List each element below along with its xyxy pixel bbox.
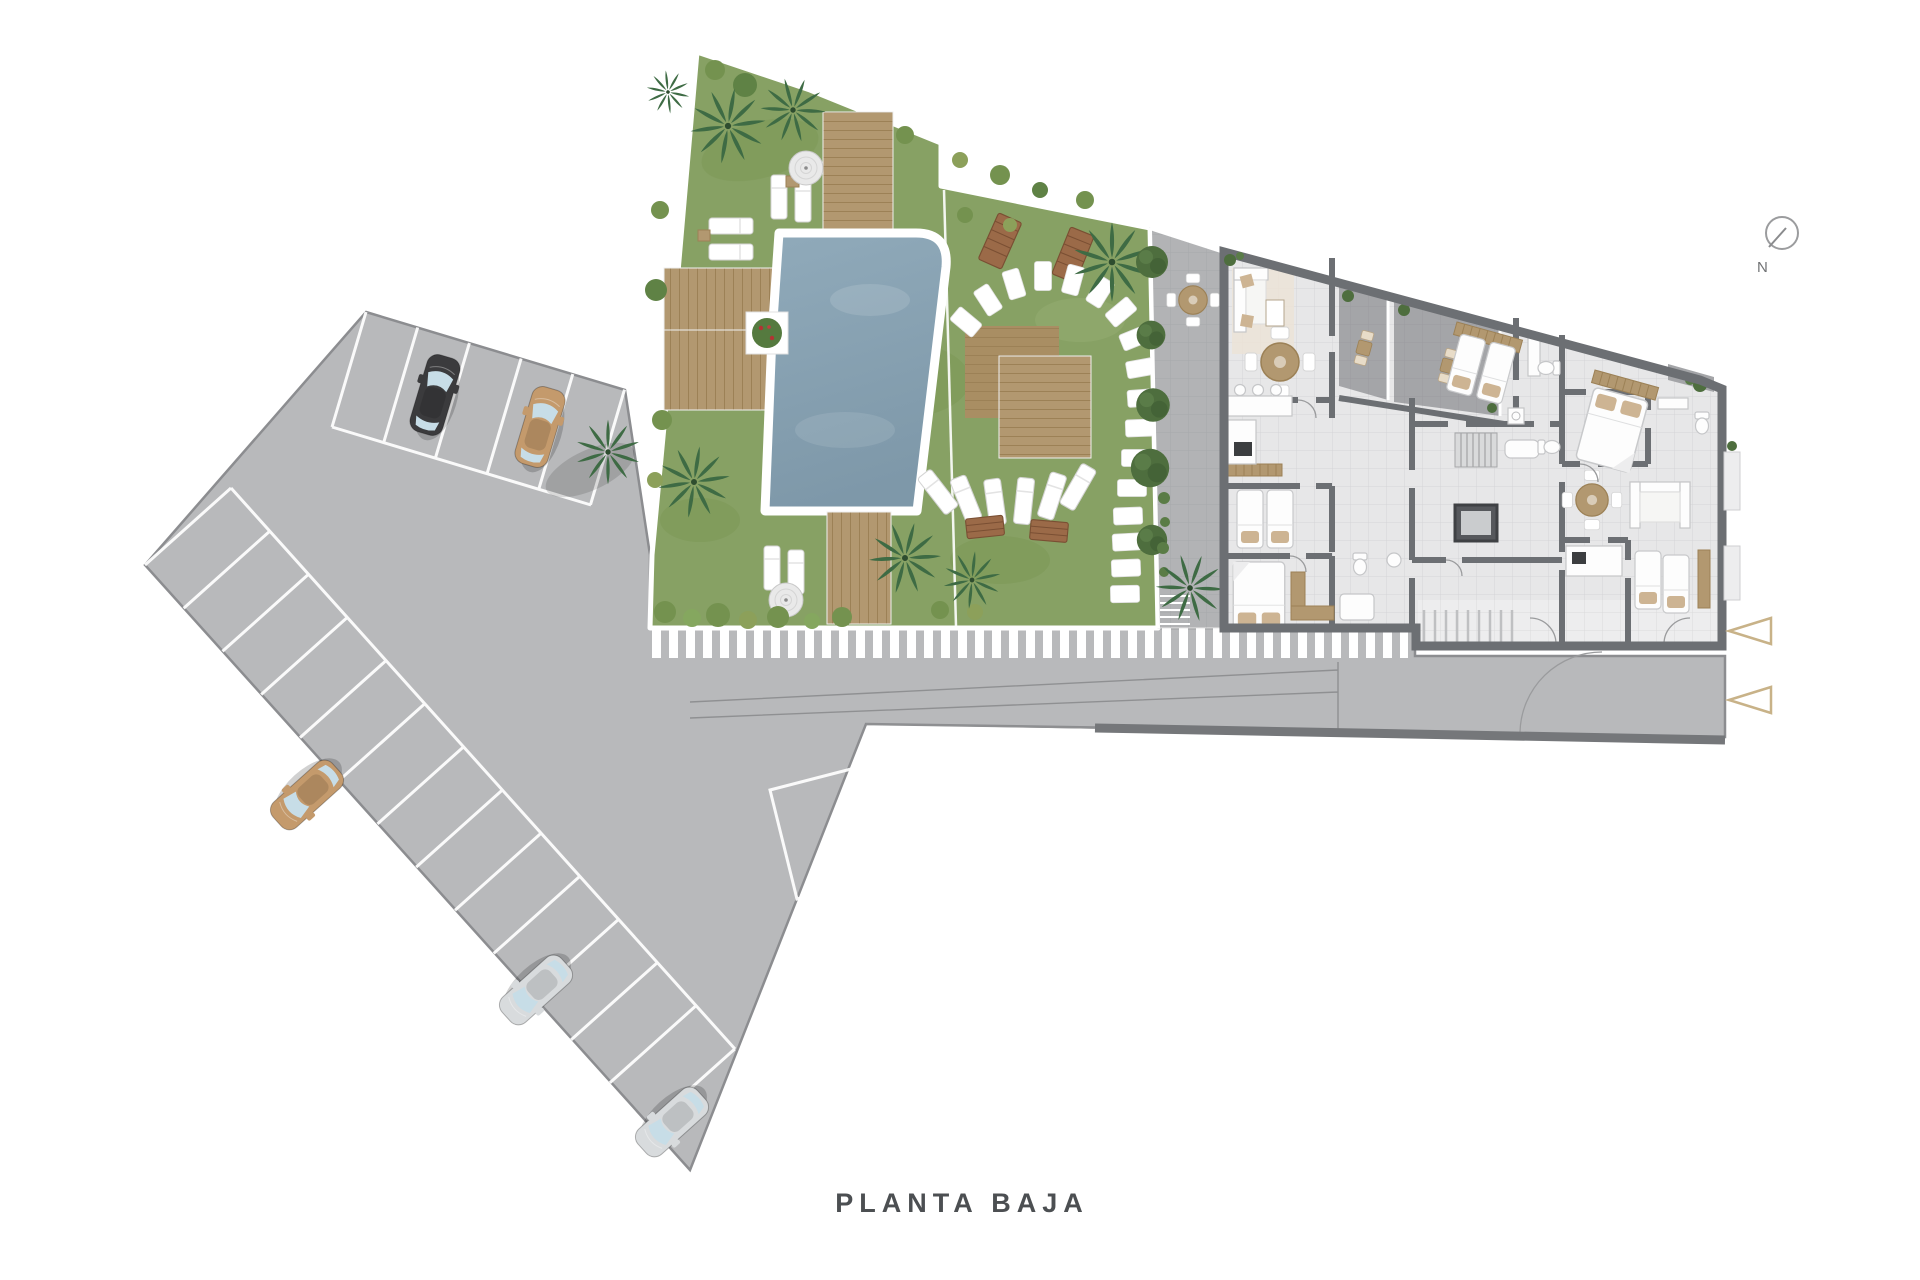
planter bbox=[746, 312, 788, 354]
north-compass-icon: N bbox=[1757, 217, 1798, 276]
garden-bench bbox=[965, 515, 1004, 539]
terrace-1 bbox=[1339, 284, 1388, 400]
pool-garden bbox=[639, 52, 1158, 629]
entrance-arrow-icon bbox=[1729, 618, 1771, 644]
site-plan: N PLANTA BAJA bbox=[0, 0, 1920, 1280]
floor-title: PLANTA BAJA bbox=[835, 1188, 1089, 1218]
entrance-arrow-icon bbox=[1729, 687, 1771, 713]
compass-label: N bbox=[1757, 259, 1768, 276]
swimming-pool bbox=[765, 233, 946, 511]
parasol-icon bbox=[789, 151, 823, 185]
wood-deck-top bbox=[823, 112, 893, 234]
wood-deck-pool-south bbox=[827, 512, 891, 624]
garden-bench bbox=[1030, 520, 1069, 543]
entrance-arrows bbox=[1729, 618, 1771, 713]
apartment-building bbox=[1224, 252, 1740, 646]
